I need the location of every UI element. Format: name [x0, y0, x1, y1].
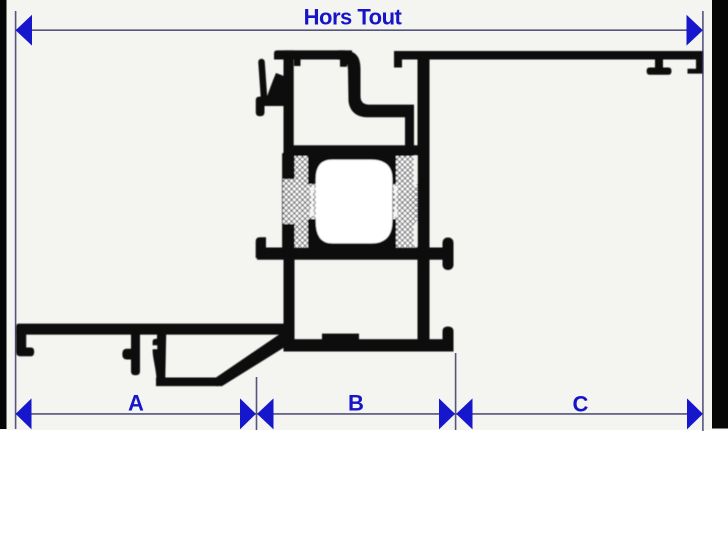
- svg-text:Hors Tout: Hors Tout: [304, 5, 403, 30]
- svg-text:A: A: [128, 391, 144, 416]
- svg-text:C: C: [573, 392, 589, 417]
- svg-text:B: B: [348, 391, 364, 416]
